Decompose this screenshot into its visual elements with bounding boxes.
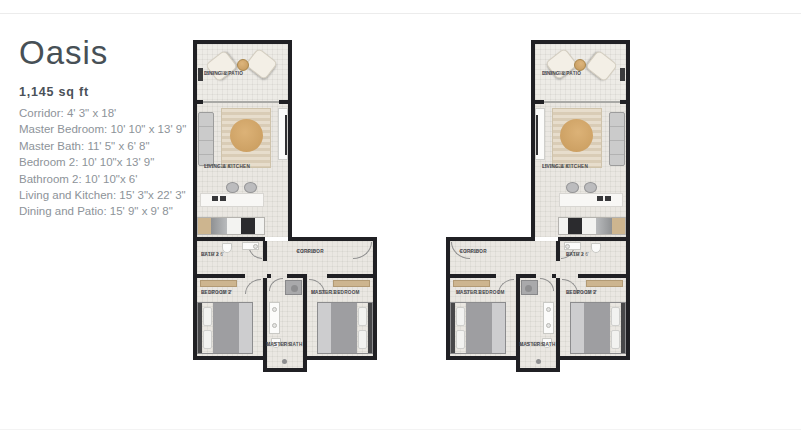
bar-stool-1: [584, 182, 597, 193]
wall-masterbath-top-left: [267, 274, 271, 278]
wall-patio-divider-left: [193, 100, 203, 104]
masterbath-basin-1: [272, 307, 277, 312]
spec-living-kitchen: Living and Kitchen: 15' 3"x 22' 3": [19, 187, 189, 203]
master-bath-dims: 11' 5" x 6' 8": [519, 342, 544, 348]
wall-bedroom2-top: [578, 274, 630, 278]
top-divider: [0, 13, 801, 14]
unit-area: 1,145 sq ft: [19, 85, 189, 99]
master-pillow-1: [456, 307, 465, 326]
bedroom2-pillow-1: [203, 307, 212, 326]
shower-drain: [282, 359, 287, 364]
shower-drain: [536, 359, 541, 364]
living-kitchen-dims: 15' 3" x 22' 3": [204, 164, 232, 170]
bedroom2-pillow-1: [611, 307, 620, 326]
masterbath-vanity: [543, 302, 554, 334]
wall-wing-right: [373, 237, 377, 360]
bedroom2-duvet: [213, 303, 239, 353]
sofa: [609, 112, 625, 166]
room-spec-list: Corridor: 4' 3" x 18' Master Bedroom: 10…: [19, 105, 189, 220]
wall-column-right: [288, 40, 292, 241]
master-bedroom-dims: 10' 10" x 13' 9": [311, 290, 342, 296]
wall-bottom-right: [303, 356, 377, 360]
master-bedfoot: [318, 303, 331, 353]
master-bedfoot: [492, 303, 505, 353]
bedroom2-dims: 10' 10" x 13' 9": [566, 290, 597, 296]
wall-bottom-right: [446, 356, 520, 360]
patio-sliding-door: [544, 101, 620, 103]
wall-shower-bottom: [516, 368, 560, 372]
bedroom2-dresser: [586, 280, 623, 287]
kitchen-counter: [558, 217, 626, 235]
spec-master-bath: Master Bath: 11' 5" x 6' 8": [19, 138, 189, 154]
sink-basin-2: [220, 196, 226, 201]
bath2-vanity: [564, 242, 581, 250]
master-bath-dims: 11' 5" x 6' 8": [266, 342, 291, 348]
wall-corridor-top: [288, 237, 377, 241]
wall-bottom-left: [193, 356, 267, 360]
floorplan-right: DINING & PATIO 15' 9" x 9' 8" LIVING & K…: [446, 40, 630, 372]
counter-white-1: [582, 218, 596, 234]
range: [568, 218, 582, 234]
patio-planter: [198, 68, 203, 81]
master-pillow-2: [456, 330, 465, 349]
counter-cabinet: [198, 218, 211, 234]
masterbath-basin-1: [546, 307, 551, 312]
wall-masterbedroom-west: [303, 278, 307, 356]
bedroom2-headboard: [621, 303, 625, 353]
unit-info-panel: Oasis 1,145 sq ft Corridor: 4' 3" x 18' …: [19, 34, 189, 220]
kitchen-island: [200, 193, 264, 207]
bedroom2-dresser: [200, 280, 237, 287]
living-kitchen-dims: 15' 3" x 22' 3": [542, 164, 570, 170]
bedroom2-pillow-2: [203, 330, 212, 349]
bottom-divider: [0, 429, 801, 430]
dining-patio-dims: 15' 9" x 9' 8": [542, 71, 568, 77]
spec-bedroom-2: Bedroom 2: 10' 10"x 13' 9": [19, 154, 189, 170]
master-headboard: [368, 303, 372, 353]
sink-basin-1: [212, 196, 218, 201]
bath2-toilet: [591, 243, 601, 253]
master-duvet: [331, 303, 357, 353]
range: [241, 218, 255, 234]
master-bed: [317, 302, 373, 354]
wall-patio-divider-left: [620, 100, 630, 104]
floorplan-left: DINING & PATIO 15' 9" x 9' 8" LIVING & K…: [193, 40, 377, 372]
wall-masterbedroom-top: [450, 274, 496, 278]
bedroom2-headboard: [198, 303, 202, 353]
sink-basin-1: [605, 196, 611, 201]
master-pillow-2: [358, 330, 367, 349]
bedroom2-pillow-2: [611, 330, 620, 349]
tv-console: [278, 108, 288, 160]
masterbath-basin-2: [272, 323, 277, 328]
wall-shower-bottom: [263, 368, 307, 372]
counter-cabinet: [612, 218, 625, 234]
page: Oasis 1,145 sq ft Corridor: 4' 3" x 18' …: [0, 0, 801, 435]
bath2-basin: [253, 244, 258, 249]
washer-drum: [525, 285, 532, 292]
sink-basin-2: [597, 196, 603, 201]
round-rug: [560, 119, 593, 152]
kitchen-island: [559, 193, 623, 207]
bath2-dims: 10' 10" x 6': [566, 252, 589, 258]
sofa: [198, 112, 214, 166]
wall-patio-divider-right: [531, 100, 544, 104]
fridge: [596, 218, 612, 234]
bedroom2-bedfoot: [571, 303, 584, 353]
wall-masterbedroom-top: [327, 274, 373, 278]
washer: [521, 280, 538, 295]
bedroom2-dims: 10' 10" x 13' 9": [201, 290, 232, 296]
tv: [285, 115, 287, 155]
round-rug: [230, 119, 263, 152]
bedroom2-bedfoot: [239, 303, 252, 353]
bath2-vanity: [242, 242, 259, 250]
wall-bedroom2-east: [556, 278, 560, 356]
masterbath-basin-2: [546, 323, 551, 328]
spec-corridor: Corridor: 4' 3" x 18': [19, 105, 189, 121]
bar-stool-2: [244, 182, 257, 193]
spec-bathroom-2: Bathroom 2: 10' 10"x 6': [19, 171, 189, 187]
wall-top: [531, 40, 630, 44]
washer-drum: [291, 285, 298, 292]
masterbath-vanity: [269, 302, 280, 334]
master-bedroom-dims: 10' 10" x 13' 9": [456, 290, 487, 296]
kitchen-counter: [197, 217, 265, 235]
counter-white-2: [255, 218, 264, 234]
patio-side-table: [237, 59, 249, 71]
bar-stool-1: [226, 182, 239, 193]
patio-planter: [620, 68, 625, 81]
master-bed: [450, 302, 506, 354]
bedroom2-bed: [197, 302, 253, 354]
master-pillow-1: [358, 307, 367, 326]
dining-patio-dims: 15' 9" x 9' 8": [204, 71, 230, 77]
corridor-dims: 4' 3" x 18': [296, 249, 316, 255]
bedroom2-duvet: [584, 303, 610, 353]
unit-title: Oasis: [19, 34, 189, 72]
master-headboard: [451, 303, 455, 353]
counter-white-1: [227, 218, 241, 234]
wall-top: [193, 40, 292, 44]
wall-kitchen-bottom: [558, 237, 630, 241]
wall-kitchen-bottom: [193, 237, 265, 241]
tv-console: [535, 108, 545, 160]
patio-side-table: [574, 59, 586, 71]
wall-bath2-right: [263, 241, 267, 261]
counter-white-2: [559, 218, 568, 234]
wall-bedroom2-top: [193, 274, 245, 278]
wall-bath2-right: [556, 241, 560, 261]
wall-patio-divider-right: [279, 100, 292, 104]
bath2-dims: 10' 10" x 6': [201, 252, 224, 258]
bedroom2-bed: [570, 302, 626, 354]
master-dresser: [333, 280, 370, 287]
spec-dining-patio: Dining and Patio: 15' 9" x 9' 8": [19, 203, 189, 219]
spec-master-bedroom: Master Bedroom: 10' 10" x 13' 9": [19, 121, 189, 137]
wall-corridor-top: [446, 237, 535, 241]
fridge: [211, 218, 227, 234]
bar-stool-2: [566, 182, 579, 193]
tv: [536, 115, 538, 155]
wall-bottom-left: [556, 356, 630, 360]
master-duvet: [466, 303, 492, 353]
wall-left: [626, 40, 630, 360]
corridor-dims: 4' 3" x 18': [459, 249, 479, 255]
master-dresser: [453, 280, 490, 287]
patio-sliding-door: [203, 101, 279, 103]
washer: [285, 280, 302, 295]
bath2-basin: [565, 244, 570, 249]
